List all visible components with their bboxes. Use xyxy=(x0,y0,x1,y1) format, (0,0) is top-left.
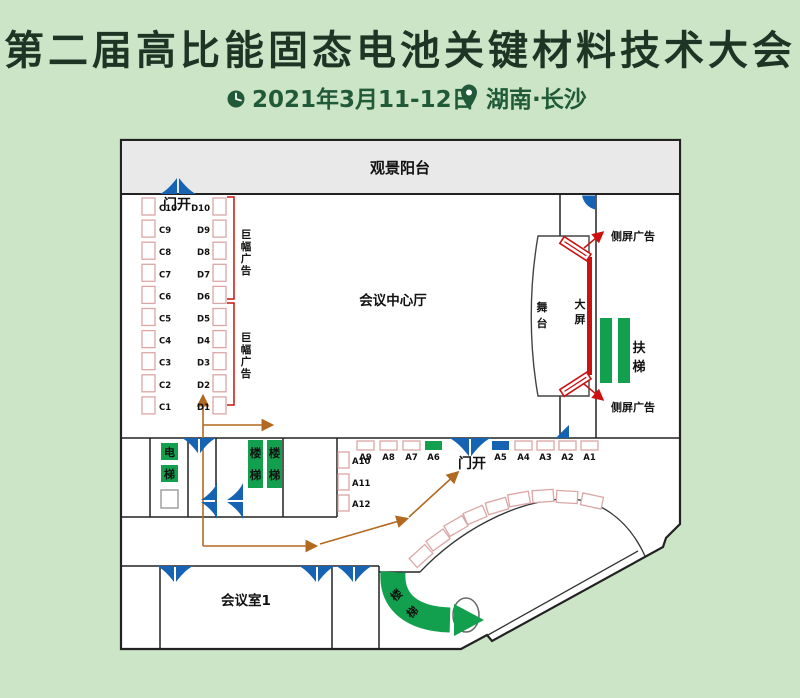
big-screen-label: 大 xyxy=(575,297,586,311)
banner-ad-label: 巨 xyxy=(241,332,252,344)
booth-D6 xyxy=(213,286,226,303)
booth-D8 xyxy=(213,242,226,259)
stairs-box-label: 楼 xyxy=(250,446,262,460)
booth-D10 xyxy=(213,198,226,215)
clock-icon xyxy=(228,91,245,108)
booth-D1 xyxy=(213,397,226,414)
booth-label-D10: D10 xyxy=(191,204,210,214)
booth-label-D9: D9 xyxy=(197,226,210,236)
booth-label-A1: A1 xyxy=(583,453,596,463)
elevator-shaft-box xyxy=(161,490,178,508)
booth-C7 xyxy=(142,264,155,281)
booth-label-D7: D7 xyxy=(197,270,210,280)
stairs-box-label: 楼 xyxy=(269,446,281,460)
conference-floorplan-poster: 第二届高比能固态电池关键材料技术大会 2021年3月11-12日 湖南·长沙 观… xyxy=(0,0,800,698)
booth-label-D4: D4 xyxy=(197,337,210,347)
booth-label-D2: D2 xyxy=(197,381,210,391)
big-screen xyxy=(587,257,592,375)
banner-ad-label: 告 xyxy=(241,367,252,380)
booth-D7 xyxy=(213,264,226,281)
big-screen-label: 屏 xyxy=(575,313,586,326)
booth-label-A6: A6 xyxy=(427,453,440,463)
stage-label: 舞 xyxy=(537,300,548,314)
floor-plan: 第二届高比能固态电池关键材料技术大会 2021年3月11-12日 湖南·长沙 观… xyxy=(0,0,800,698)
booth-C8 xyxy=(142,242,155,259)
booth-label-A4: A4 xyxy=(517,453,530,463)
booth-label-A10: A10 xyxy=(352,457,370,467)
booth-label-C6: C6 xyxy=(159,292,171,302)
door-open-label-mid: 门开 xyxy=(458,455,486,472)
booth-D2 xyxy=(213,375,226,392)
banner-ad-label: 告 xyxy=(241,264,252,277)
booth-label-D5: D5 xyxy=(197,315,210,325)
escalator-label: 梯 xyxy=(632,359,645,375)
booth-label-D8: D8 xyxy=(197,248,210,258)
meeting-room-label: 会议室1 xyxy=(221,592,271,609)
stage-label: 台 xyxy=(537,316,548,330)
escalator-label: 扶 xyxy=(632,340,646,356)
booth-B3 xyxy=(532,489,554,502)
booth-A9 xyxy=(357,441,374,450)
booth-label-D1: D1 xyxy=(197,403,210,413)
booth-C10 xyxy=(142,198,155,215)
hall-label: 会议中心厅 xyxy=(359,292,427,309)
banner-ad-label: 巨 xyxy=(241,229,252,241)
booth-A5 xyxy=(492,441,509,450)
booth-label-C10: C10 xyxy=(159,204,177,214)
banner-ad-label: 幅 xyxy=(241,240,252,253)
event-location: 湖南·长沙 xyxy=(486,87,587,113)
banner-ad-label: 幅 xyxy=(241,343,252,356)
booth-C1 xyxy=(142,397,155,414)
page-title: 第二届高比能固态电池关键材料技术大会 xyxy=(4,28,796,74)
booth-label-A8: A8 xyxy=(382,453,395,463)
booth-C9 xyxy=(142,220,155,237)
booth-D4 xyxy=(213,331,226,348)
booth-label-D3: D3 xyxy=(197,359,210,369)
stairs-box-label: 梯 xyxy=(250,468,262,482)
booth-label-C8: C8 xyxy=(159,248,171,258)
booth-A11 xyxy=(338,474,349,490)
booth-label-A5: A5 xyxy=(494,453,507,463)
banner-ad-label: 广 xyxy=(241,355,252,368)
booth-A6 xyxy=(425,441,442,450)
booth-label-D6: D6 xyxy=(197,292,210,302)
booth-C2 xyxy=(142,375,155,392)
booth-D3 xyxy=(213,353,226,370)
elevator-label: 电 xyxy=(164,445,175,459)
balcony-label: 观景阳台 xyxy=(370,159,430,177)
booth-D5 xyxy=(213,309,226,326)
booth-label-C9: C9 xyxy=(159,226,171,236)
escalator-bar xyxy=(600,318,612,383)
booth-A3 xyxy=(537,441,554,450)
side-ad-label-top: 侧屏广告 xyxy=(611,229,655,243)
banner-ad-label: 广 xyxy=(241,252,252,265)
booth-label-C7: C7 xyxy=(159,270,171,280)
booth-label-C3: C3 xyxy=(159,359,171,369)
booth-A1 xyxy=(581,441,598,450)
booth-C5 xyxy=(142,309,155,326)
booth-A4 xyxy=(515,441,532,450)
booth-A2 xyxy=(559,441,576,450)
booth-label-A11: A11 xyxy=(352,479,370,489)
booth-C4 xyxy=(142,331,155,348)
booth-A10 xyxy=(338,452,349,468)
escalator-bar xyxy=(618,318,630,383)
booth-label-A3: A3 xyxy=(539,453,552,463)
event-date: 2021年3月11-12日 xyxy=(252,86,475,113)
booth-label-A7: A7 xyxy=(405,453,418,463)
booth-label-A12: A12 xyxy=(352,500,370,510)
booth-C6 xyxy=(142,286,155,303)
booth-label-C4: C4 xyxy=(159,337,171,347)
booth-A7 xyxy=(403,441,420,450)
booth-C3 xyxy=(142,353,155,370)
booth-label-C2: C2 xyxy=(159,381,171,391)
booth-label-A2: A2 xyxy=(561,453,574,463)
side-ad-label-bottom: 侧屏广告 xyxy=(611,400,655,414)
booth-label-C5: C5 xyxy=(159,315,171,325)
booth-A12 xyxy=(338,495,349,511)
elevator-label: 梯 xyxy=(164,467,175,481)
booth-A8 xyxy=(380,441,397,450)
booth-D9 xyxy=(213,220,226,237)
booth-label-C1: C1 xyxy=(159,403,171,413)
booth-B2 xyxy=(556,490,578,503)
stairs-box-label: 梯 xyxy=(269,468,281,482)
